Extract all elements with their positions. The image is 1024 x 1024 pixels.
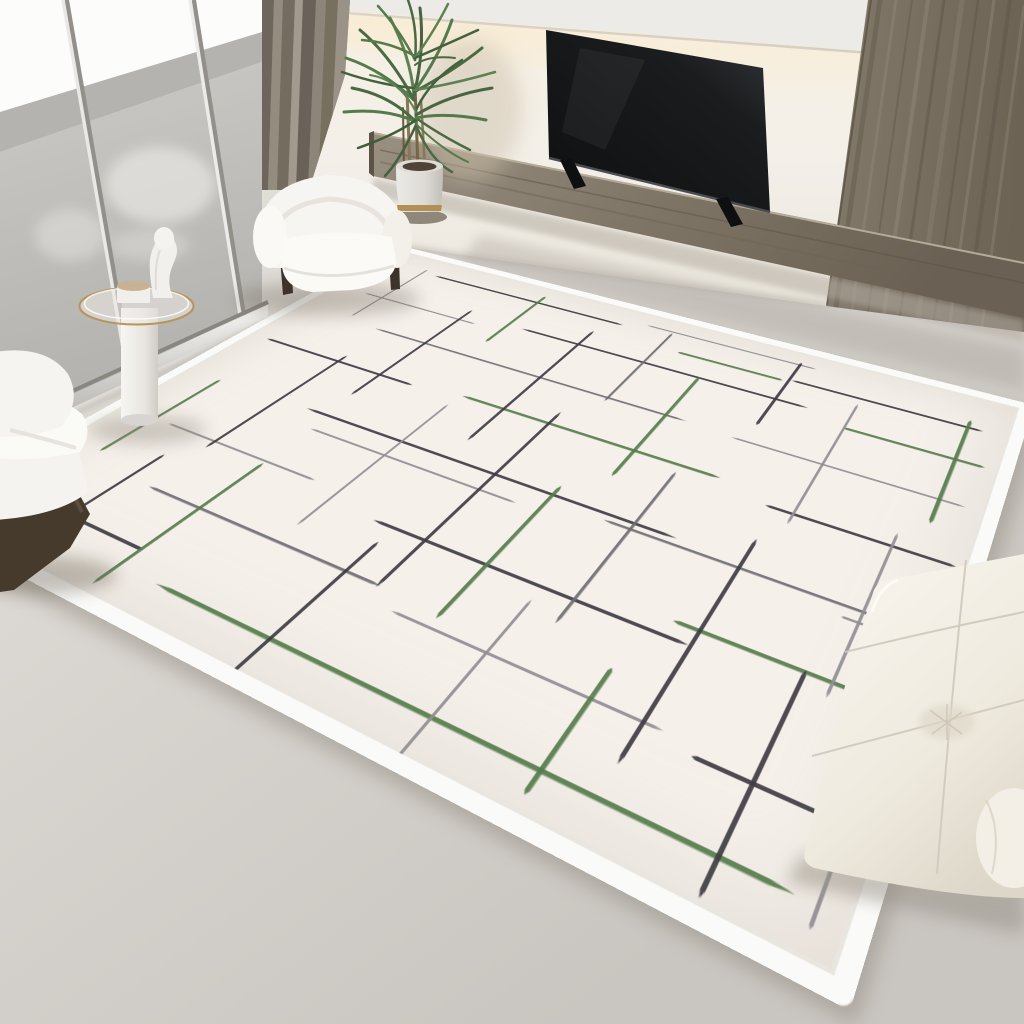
living-room-photo (0, 0, 1024, 1024)
sculpture (150, 227, 177, 298)
armchair-back (0, 350, 74, 437)
foreground-furniture (0, 0, 1024, 1024)
side-table (80, 227, 207, 444)
boucle-armchair-top (236, 175, 420, 316)
tufted-pouf (786, 554, 1024, 934)
armchair-seat (282, 233, 396, 292)
boucle-armchair-left (0, 350, 117, 594)
decor-box (117, 281, 150, 303)
